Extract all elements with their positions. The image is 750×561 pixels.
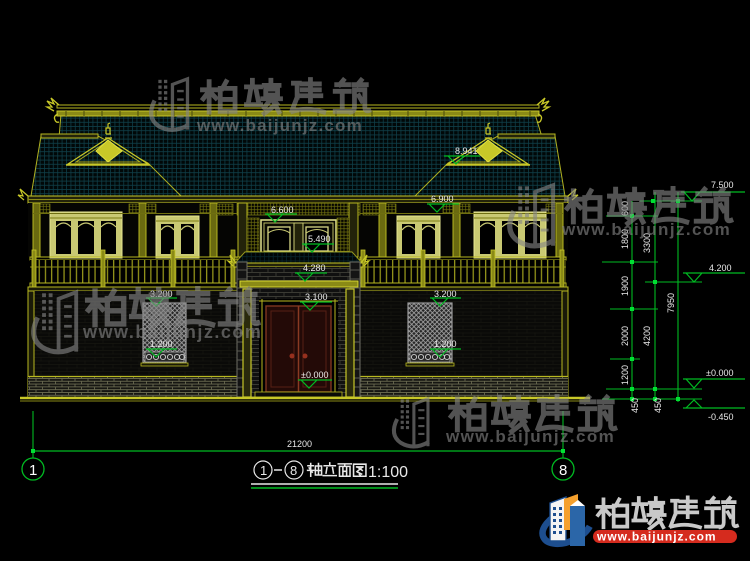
svg-text:1: 1 [260, 463, 267, 478]
svg-text:3.100: 3.100 [305, 292, 328, 302]
svg-text:21200: 21200 [287, 439, 312, 449]
svg-text:2000: 2000 [620, 326, 630, 346]
svg-text:±0.000: ±0.000 [706, 368, 733, 378]
svg-text:www.baijunjz.com: www.baijunjz.com [561, 220, 731, 239]
svg-text:450: 450 [630, 398, 640, 413]
svg-text:1:100: 1:100 [368, 464, 408, 481]
svg-text:-0.450: -0.450 [708, 412, 734, 422]
svg-text:1200: 1200 [620, 365, 630, 385]
svg-text:4.280: 4.280 [303, 263, 326, 273]
svg-text:4200: 4200 [642, 326, 652, 346]
svg-text:8: 8 [290, 463, 297, 478]
svg-text:www.baijunjz.com: www.baijunjz.com [82, 322, 262, 342]
svg-text:450: 450 [653, 398, 663, 413]
svg-text:1.200: 1.200 [434, 339, 457, 349]
svg-text:8.941: 8.941 [455, 146, 478, 156]
svg-text:1: 1 [29, 462, 37, 479]
svg-text:7950: 7950 [666, 293, 676, 313]
svg-text:8: 8 [559, 462, 567, 479]
svg-text:www.baijunjz.com: www.baijunjz.com [196, 116, 363, 135]
svg-text:4.200: 4.200 [709, 263, 732, 273]
svg-text:www.baijunjz.com: www.baijunjz.com [596, 530, 717, 544]
svg-text:1900: 1900 [620, 276, 630, 296]
svg-text:6.900: 6.900 [431, 194, 454, 204]
svg-text:5.490: 5.490 [308, 234, 331, 244]
svg-text:±0.000: ±0.000 [301, 370, 328, 380]
svg-text:www.baijunjz.com: www.baijunjz.com [445, 427, 615, 446]
